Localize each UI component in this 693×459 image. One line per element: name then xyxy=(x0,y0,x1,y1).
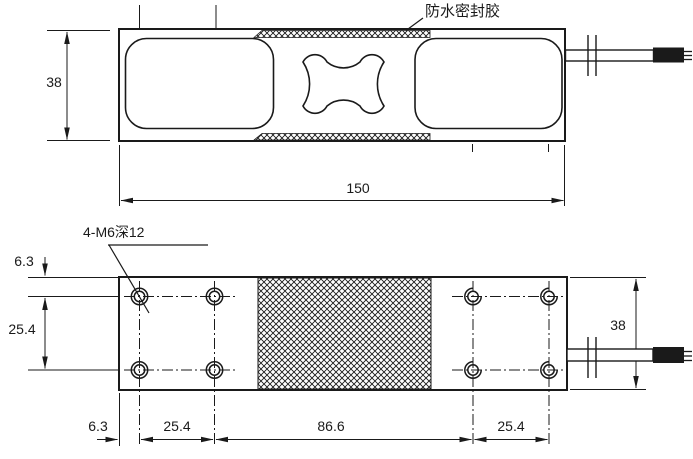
drawing-svg: 38 150 防水密封胶 xyxy=(0,0,693,459)
side-view: 38 150 xyxy=(46,5,692,206)
plan-top-margin-value: 6.3 xyxy=(14,253,34,269)
plan-center-span-value: 86.6 xyxy=(317,418,344,434)
sealant-hatch-top xyxy=(254,31,430,38)
plan-height-dim xyxy=(570,278,646,390)
plan-hatch-zone xyxy=(258,278,431,389)
cable-connector xyxy=(653,48,684,63)
side-view-length-dim xyxy=(120,145,565,206)
load-cell-drawing: 38 150 防水密封胶 xyxy=(0,0,693,459)
sealant-label: 防水密封胶 xyxy=(425,3,500,20)
plan-height-value: 38 xyxy=(610,317,626,333)
plan-col-spacing-right-value: 25.4 xyxy=(497,418,524,434)
plan-col-spacing-left-value: 25.4 xyxy=(163,418,190,434)
cable-connector xyxy=(653,347,684,363)
sealant-hatch-bottom xyxy=(254,134,430,141)
plan-view xyxy=(28,245,692,446)
thread-note-label: 4-M6深12 xyxy=(83,224,145,240)
cable-wire-strands xyxy=(683,352,692,361)
side-length-value: 150 xyxy=(346,180,370,196)
side-height-value: 38 xyxy=(46,74,62,90)
side-view-cable xyxy=(566,35,693,76)
plan-row-spacing-value: 25.4 xyxy=(8,321,35,337)
cable-sleeve xyxy=(566,50,654,61)
cable-wire-strands xyxy=(683,52,692,60)
cable-sleeve xyxy=(567,349,653,361)
plan-view-cable xyxy=(567,337,692,378)
plan-left-margin-value: 6.3 xyxy=(88,418,108,434)
